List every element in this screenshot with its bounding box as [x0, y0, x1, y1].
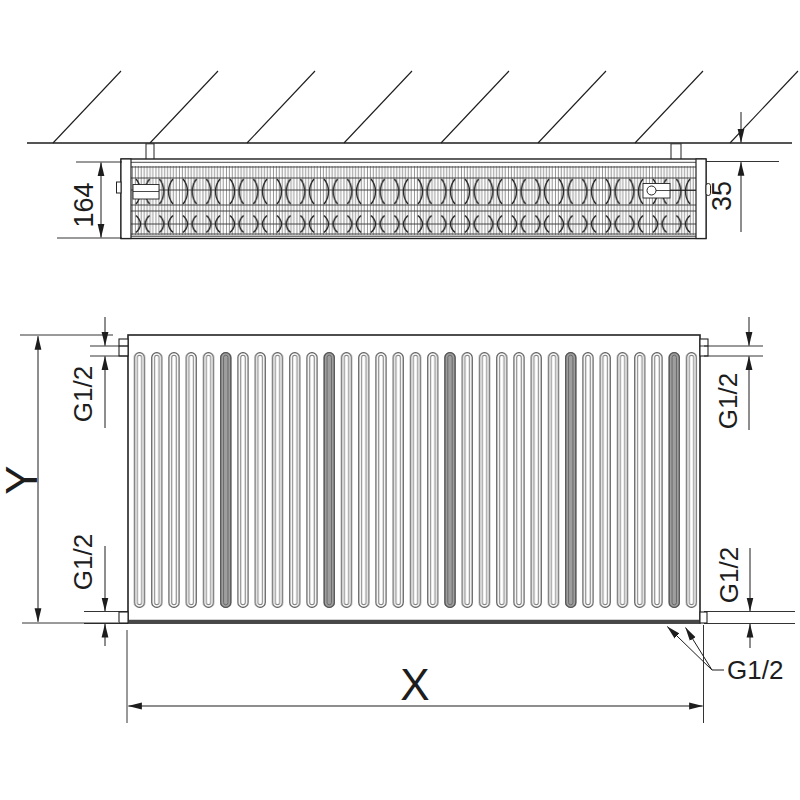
radiator-top-body — [117, 159, 711, 239]
bracket-screw-icon — [647, 186, 656, 195]
connection-nub-left — [117, 182, 122, 193]
convector-fins — [131, 166, 696, 235]
top-view: 164 35 — [27, 71, 798, 239]
conn-top-left-label: G1/2 — [68, 366, 98, 422]
dimension-height: Y — [0, 335, 118, 623]
dimension-conn-bottom-right: G1/2 — [704, 547, 795, 648]
dimension-conn-bottom-left: G1/2 — [68, 534, 128, 646]
wall-gap-label: 35 — [707, 181, 737, 211]
height-label: Y — [0, 465, 46, 494]
dimension-conn-top-left: G1/2 — [68, 317, 128, 428]
conn-bottom-leader-label: G1/2 — [727, 655, 783, 685]
depth-label: 164 — [69, 182, 99, 227]
end-cap-left — [121, 159, 131, 239]
connection-stub-top-left — [119, 339, 128, 356]
leader-conn-bottom: G1/2 — [667, 627, 783, 685]
conn-bottom-right-label: G1/2 — [714, 547, 744, 603]
drawing-canvas: 164 35 — [0, 0, 800, 800]
conn-bottom-left-label: G1/2 — [68, 534, 98, 590]
dimension-width: X — [127, 625, 704, 723]
dimension-depth: 164 — [57, 162, 122, 238]
wall-hatching — [53, 71, 798, 143]
front-grooves — [128, 352, 697, 608]
width-label: X — [400, 660, 429, 709]
connection-stub-bottom-left — [119, 612, 128, 623]
mounting-bracket-right — [671, 144, 681, 160]
front-view: Y X G1/2 G1/2 — [0, 317, 795, 723]
radiator-technical-drawing: 164 35 — [0, 0, 800, 800]
connection-stub-bottom-right — [700, 612, 707, 623]
connection-stub-top-right — [700, 339, 708, 356]
bracket-clip-left — [133, 185, 159, 200]
end-cap-right — [696, 159, 706, 239]
mounting-bracket-left — [146, 144, 154, 160]
conn-top-right-label: G1/2 — [713, 373, 743, 429]
dimension-conn-top-right: G1/2 — [704, 317, 763, 430]
